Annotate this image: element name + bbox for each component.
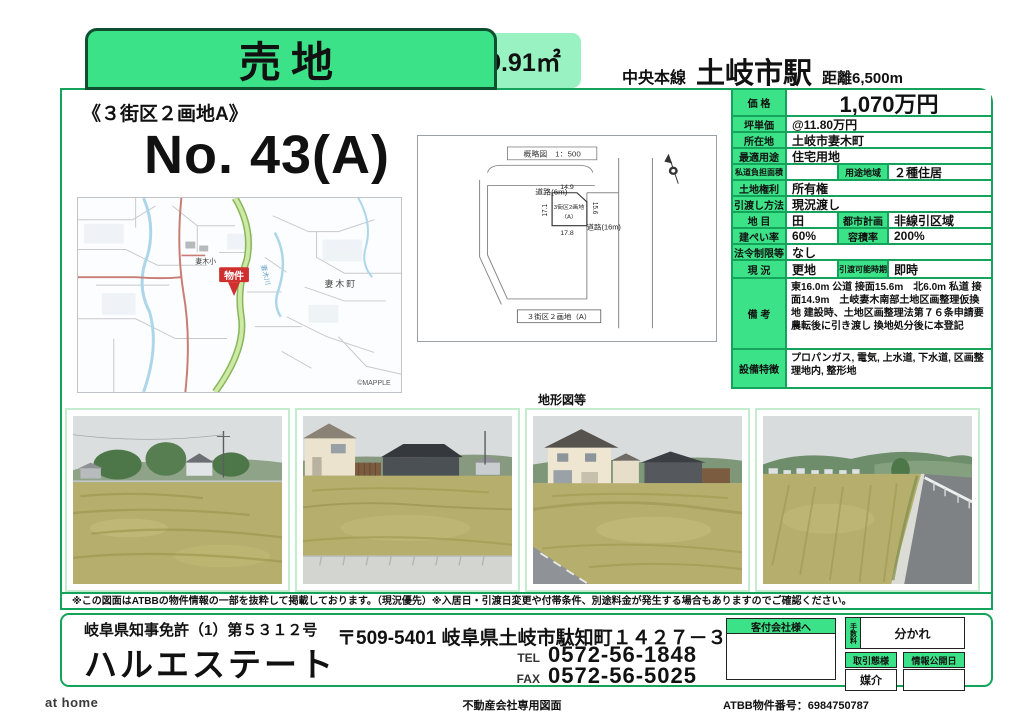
row-remarks: 備 考 東16.0m 公道 接面15.6m 北6.0m 私道 接面14.9m 土… [733, 279, 991, 350]
photo-1-image [73, 416, 282, 584]
license-number: 岐阜県知事免許（1）第５３１２号 [84, 619, 317, 640]
best-use-label: 最適用途 [733, 149, 787, 163]
row-land-right: 土地権利 所有権 [733, 181, 991, 197]
main-content-box: 《３街区２画地A》 No. 43(A) [60, 88, 993, 610]
deal-type-value: 媒介 [845, 669, 897, 691]
private-road-value [787, 165, 837, 179]
station-info: 中央本線 土岐市駅 距離6,500m [622, 50, 903, 92]
fax-number: 0572-56-5025 [548, 663, 697, 689]
publish-date-value [903, 669, 965, 691]
company-name: ハルエステート [84, 638, 336, 686]
location-map: 妻木小 妻木町 妻木川 物件 ©MAPPLE [77, 197, 402, 393]
zoning-value: ２種住居 [889, 165, 991, 179]
remarks-value: 東16.0m 公道 接面15.6m 北6.0m 私道 接面14.9m 土岐妻木南… [787, 279, 991, 348]
unit-price-label: 坪単価 [733, 117, 787, 131]
row-best-use: 最適用途 住宅用地 [733, 149, 991, 165]
private-road-label: 私道負担面積 [733, 165, 787, 179]
legal-label: 法令制限等 [733, 245, 787, 259]
map-school-label: 妻木小 [195, 256, 216, 265]
fax-label: FAX [517, 672, 540, 686]
photo-2 [295, 408, 520, 592]
available-value: 即時 [889, 261, 991, 277]
city-plan-value: 非線引区域 [889, 213, 991, 227]
best-use-value: 住宅用地 [787, 149, 991, 163]
current-label: 現 況 [733, 261, 787, 277]
road-top-label: 道路(6m) [535, 187, 568, 197]
publish-date-box: 情報公開日 [903, 652, 965, 691]
row-land-category: 地 目 田 都市計画 非線引区域 [733, 213, 991, 229]
rail-line-label: 中央本線 [622, 64, 686, 88]
block-label: 《３街区２画地A》 [82, 99, 248, 126]
photo-2-image [303, 416, 512, 584]
site-plan-bottom-label: ３街区２画地（A） [527, 312, 592, 321]
map-town-label: 妻木町 [324, 278, 357, 289]
photo-1 [65, 408, 290, 592]
handover-value: 現況渡し [787, 197, 991, 211]
land-category-label: 地 目 [733, 213, 787, 227]
photos-section-caption: 地形図等 [502, 391, 622, 408]
sale-type-label: 売地 [239, 29, 343, 90]
price-value: 1,070万円 [787, 90, 991, 115]
location-map-image: 妻木小 妻木町 妻木川 物件 ©MAPPLE [78, 198, 401, 392]
station-name: 土岐市駅 [696, 50, 812, 92]
land-category-value: 田 [787, 213, 837, 227]
handover-label: 引渡し方法 [733, 197, 787, 211]
fee-label: 手数料 [846, 618, 861, 648]
site-plan: 概略図 1：500 14.9 17.8 1 [417, 135, 717, 342]
location-value: 土岐市妻木町 [787, 133, 991, 147]
row-handover: 引渡し方法 現況渡し [733, 197, 991, 213]
photo-4 [755, 408, 980, 592]
property-detail-table: 価 格 1,070万円 坪単価 @11.80万円 所在地 土岐市妻木町 最適用途… [731, 90, 991, 389]
fax-row: FAX 0572-56-5025 [482, 663, 697, 689]
sale-type-banner: 売地 [85, 28, 497, 90]
dim-right: 15.6 [591, 202, 598, 215]
photo-3 [525, 408, 750, 592]
athome-logo: at home [45, 695, 98, 710]
disclaimer-text: ※この図面はATBBの物件情報の一部を抜粋して掲載しております。（現況優先）※入… [62, 592, 991, 610]
unit-price-value: @11.80万円 [787, 117, 991, 131]
row-current: 現 況 更地 引渡可能時期 即時 [733, 261, 991, 279]
row-price: 価 格 1,070万円 [733, 90, 991, 117]
dim-left: 17.1 [542, 204, 549, 217]
photo-3-image [533, 416, 742, 584]
row-private-road-zoning: 私道負担面積 用途地域 ２種住居 [733, 165, 991, 181]
site-plan-image: 概略図 1：500 14.9 17.8 1 [418, 136, 716, 341]
row-legal: 法令制限等 なし [733, 245, 991, 261]
publish-date-label: 情報公開日 [903, 652, 965, 668]
fee-value: 分かれ [861, 618, 964, 648]
document-type-label: 不動産会社専用図面 [463, 697, 562, 713]
deal-type-box: 取引態様 媒介 [845, 652, 897, 691]
road-right-label: 道路(16m) [587, 223, 621, 232]
equipment-label: 設備特徴 [733, 350, 787, 387]
land-right-label: 土地権利 [733, 181, 787, 195]
flyer-page: 売地 （公簿）299.91㎡ 中央本線 土岐市駅 距離6,500m 《３街区２画… [0, 0, 1024, 724]
deal-type-label: 取引態様 [845, 652, 897, 668]
location-label: 所在地 [733, 133, 787, 147]
current-value: 更地 [787, 261, 837, 277]
remarks-label: 備 考 [733, 279, 787, 348]
parcel-label-line1: 3街区2画地 [554, 203, 585, 211]
lot-number: No. 43(A) [122, 124, 412, 186]
legal-value: なし [787, 245, 991, 259]
available-label: 引渡可能時期 [837, 261, 889, 277]
photo-4-image [763, 416, 972, 584]
station-distance: 距離6,500m [822, 67, 903, 88]
row-coverage: 建ぺい率 60% 容積率 200% [733, 229, 991, 245]
map-property-marker: 物件 [224, 269, 244, 282]
client-company-header: 客付会社様へ [727, 619, 835, 634]
coverage-value: 60% [787, 229, 837, 243]
equipment-value: プロパンガス, 電気, 上水道, 下水道, 区画整理地内, 整形地 [787, 350, 991, 387]
coverage-label: 建ぺい率 [733, 229, 787, 243]
row-equipment: 設備特徴 プロパンガス, 電気, 上水道, 下水道, 区画整理地内, 整形地 [733, 350, 991, 389]
atbb-property-number: ATBB物件番号：6984750787 [723, 697, 869, 713]
floor-ratio-label: 容積率 [837, 229, 889, 243]
price-label: 価 格 [733, 90, 787, 115]
dim-bottom: 17.8 [560, 230, 574, 237]
site-plan-scale: 概略図 1：500 [523, 149, 580, 159]
client-company-box: 客付会社様へ [726, 618, 836, 680]
city-plan-label: 都市計画 [837, 213, 889, 227]
row-unit-price: 坪単価 @11.80万円 [733, 117, 991, 133]
map-credit: ©MAPPLE [357, 379, 391, 387]
zoning-label: 用途地域 [837, 165, 889, 179]
floor-ratio-value: 200% [889, 229, 991, 243]
fee-box: 手数料 分かれ [845, 617, 965, 649]
parcel-label-line2: （A） [561, 214, 577, 221]
footer-box: 岐阜県知事免許（1）第５３１２号 ハルエステート 〒509-5401 岐阜県土岐… [60, 613, 993, 687]
land-right-value: 所有権 [787, 181, 991, 195]
row-location: 所在地 土岐市妻木町 [733, 133, 991, 149]
